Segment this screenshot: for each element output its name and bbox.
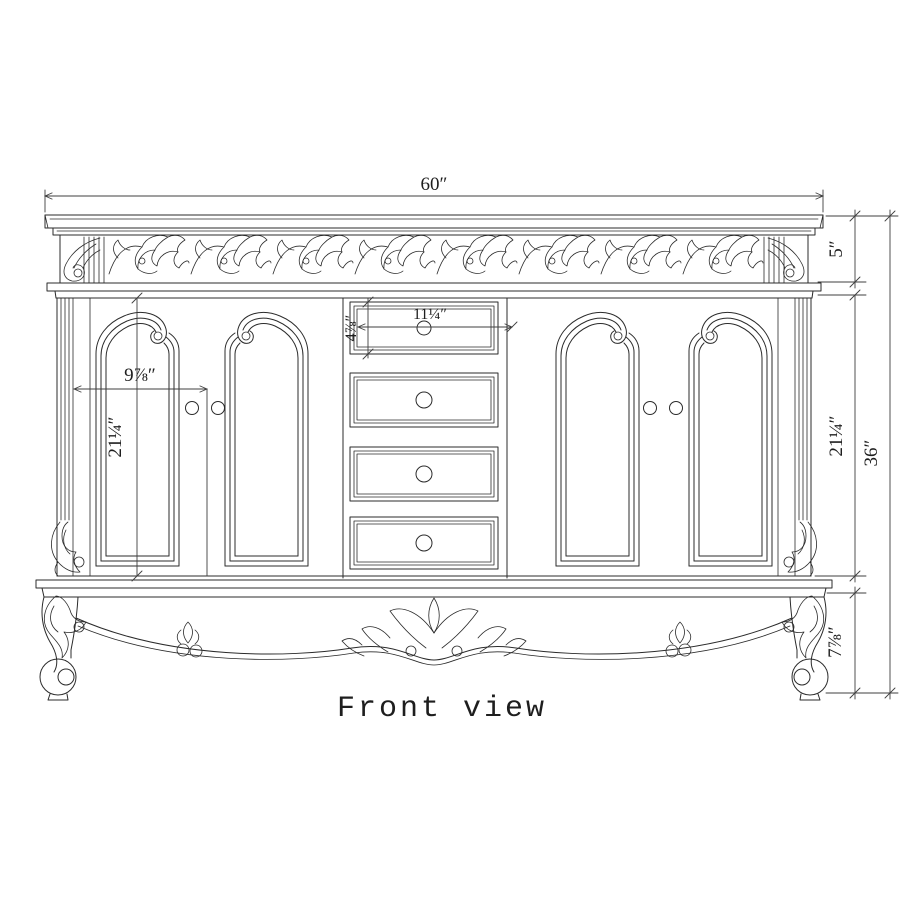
door-knob-4	[670, 402, 683, 415]
technical-drawing-page: 60″ 5″ 21¼″ 7⅞″ 36″ 9⅞″ 21¼″ 11¼″	[0, 0, 900, 900]
drawer-4	[350, 517, 498, 569]
view-title: Front view	[337, 692, 547, 726]
scalloped-apron	[76, 598, 792, 665]
dim-drawer-width-label: 11¼″	[413, 306, 447, 323]
dim-top-width-label: 60″	[421, 174, 448, 195]
door-panel-2	[225, 312, 308, 566]
drawer-knob-3	[416, 466, 432, 482]
upper-molding	[47, 283, 821, 298]
drawer-3	[350, 447, 498, 501]
door-knob-1	[186, 402, 199, 415]
apron-berry-right-icon	[666, 622, 691, 657]
door-knob-2	[212, 402, 225, 415]
frieze-scroll-pattern	[109, 235, 763, 274]
apron-palmette-icon	[342, 598, 526, 656]
door-panel-3	[556, 312, 639, 566]
dim-door-height-label: 21¼″	[105, 416, 126, 457]
dim-frieze-height-label: 5″	[826, 240, 847, 257]
drawer-2	[350, 373, 498, 427]
door-knob-3	[644, 402, 657, 415]
dim-door-width: 9⅞″	[74, 365, 207, 576]
dim-right-stack: 5″ 21¼″ 7⅞″ 36″	[815, 210, 898, 699]
pilaster-acanthus-right-icon	[784, 522, 817, 576]
pilaster-acanthus-left-icon	[51, 522, 84, 576]
drawer-knob-4	[416, 535, 432, 551]
dim-body-height-label: 21¼″	[826, 415, 847, 456]
dim-door-width-label: 9⅞″	[124, 365, 156, 386]
dim-drawer-height-label: 4⅞″	[343, 315, 360, 342]
base-molding	[36, 580, 832, 597]
apron-berry-left-icon	[177, 622, 202, 657]
dim-total-height-label: 36″	[861, 440, 882, 467]
dim-top-width: 60″	[45, 174, 823, 212]
drawing-canvas: 60″ 5″ 21¼″ 7⅞″ 36″ 9⅞″ 21¼″ 11¼″	[0, 0, 900, 900]
cabinet-body	[51, 298, 816, 578]
cabriole-leg-right	[782, 596, 828, 700]
countertop	[45, 215, 823, 235]
dim-door-height: 21¼″	[105, 293, 142, 581]
corbel-left-icon	[64, 238, 100, 281]
door-panel-4	[689, 312, 772, 566]
corbel-right-icon	[768, 238, 804, 281]
drawer-knob-1	[417, 321, 431, 335]
dim-leg-height-label: 7⅞″	[825, 626, 846, 658]
drawer-knob-2	[416, 392, 432, 408]
cabriole-leg-left	[40, 596, 86, 700]
carved-frieze	[60, 235, 808, 283]
